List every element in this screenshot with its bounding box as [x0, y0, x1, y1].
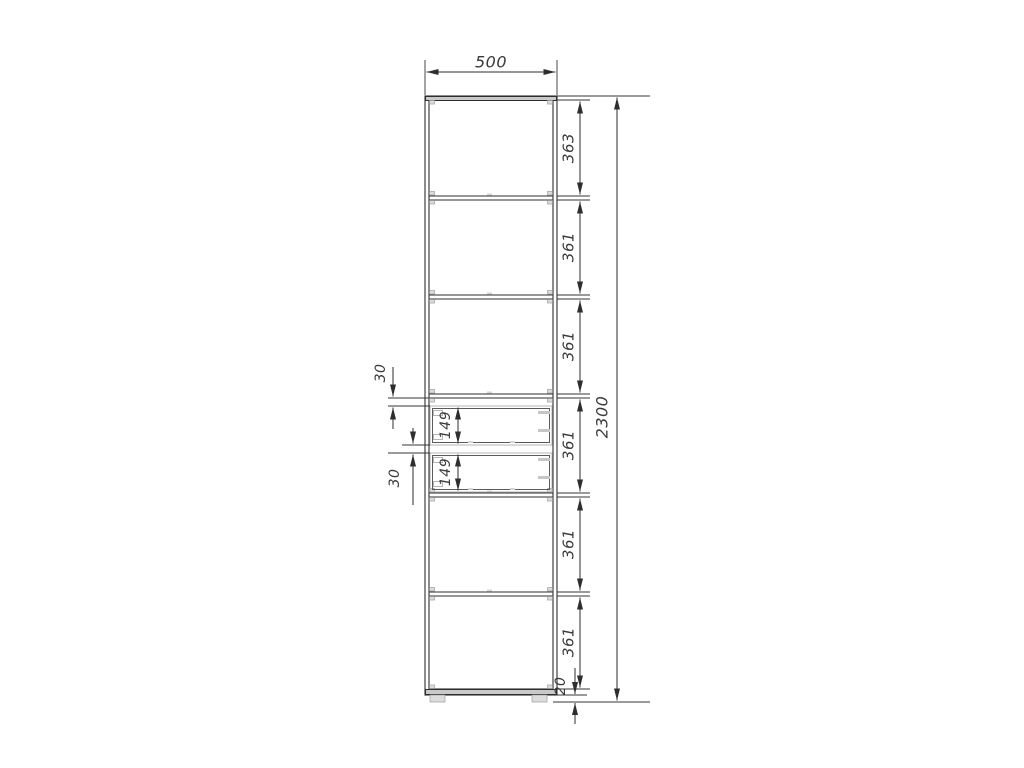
foot-left	[430, 695, 445, 702]
dim-drawer-gap-middle: 30	[387, 428, 430, 505]
dim-label-section-3: 361	[560, 331, 578, 361]
dim-label-section-1: 363	[560, 133, 578, 163]
dim-width: 500	[425, 53, 557, 96]
dim-label-section-5: 361	[560, 529, 578, 559]
cabinet	[425, 96, 557, 702]
dim-label-width: 500	[475, 53, 507, 72]
dim-drawer-gap-top: 30	[373, 364, 430, 429]
top-panel	[426, 97, 557, 101]
dim-section-heights: 363 361 361 361 361 361	[560, 102, 581, 688]
dim-label-drawer-gap-middle: 30	[387, 469, 403, 488]
dim-label-drawer-gap-top: 30	[373, 364, 389, 383]
drawer-1-slide-right-bottom	[538, 429, 550, 432]
drawer-1-slide-right-top	[538, 411, 550, 414]
drawing-canvas: 500 363 361 361	[0, 0, 1024, 768]
dim-label-drawer2-height: 149	[438, 458, 454, 486]
dim-label-section-4: 361	[560, 430, 578, 460]
dim-label-section-6: 361	[560, 627, 578, 657]
foot-right	[532, 695, 547, 702]
drawer-2-slide-right-bottom	[538, 476, 550, 479]
bottom-panel	[426, 690, 557, 695]
drawer-2-slide-right-top	[538, 458, 550, 461]
technical-drawing: 500 363 361 361	[0, 0, 1024, 768]
dim-label-section-2: 361	[560, 232, 578, 262]
dim-label-plinth: 20	[553, 677, 569, 696]
cabinet-outline	[425, 96, 557, 695]
dim-label-overall-height: 2300	[593, 396, 612, 439]
dim-overall-height: 2300	[593, 98, 618, 701]
dim-label-drawer1-height: 149	[438, 411, 454, 439]
